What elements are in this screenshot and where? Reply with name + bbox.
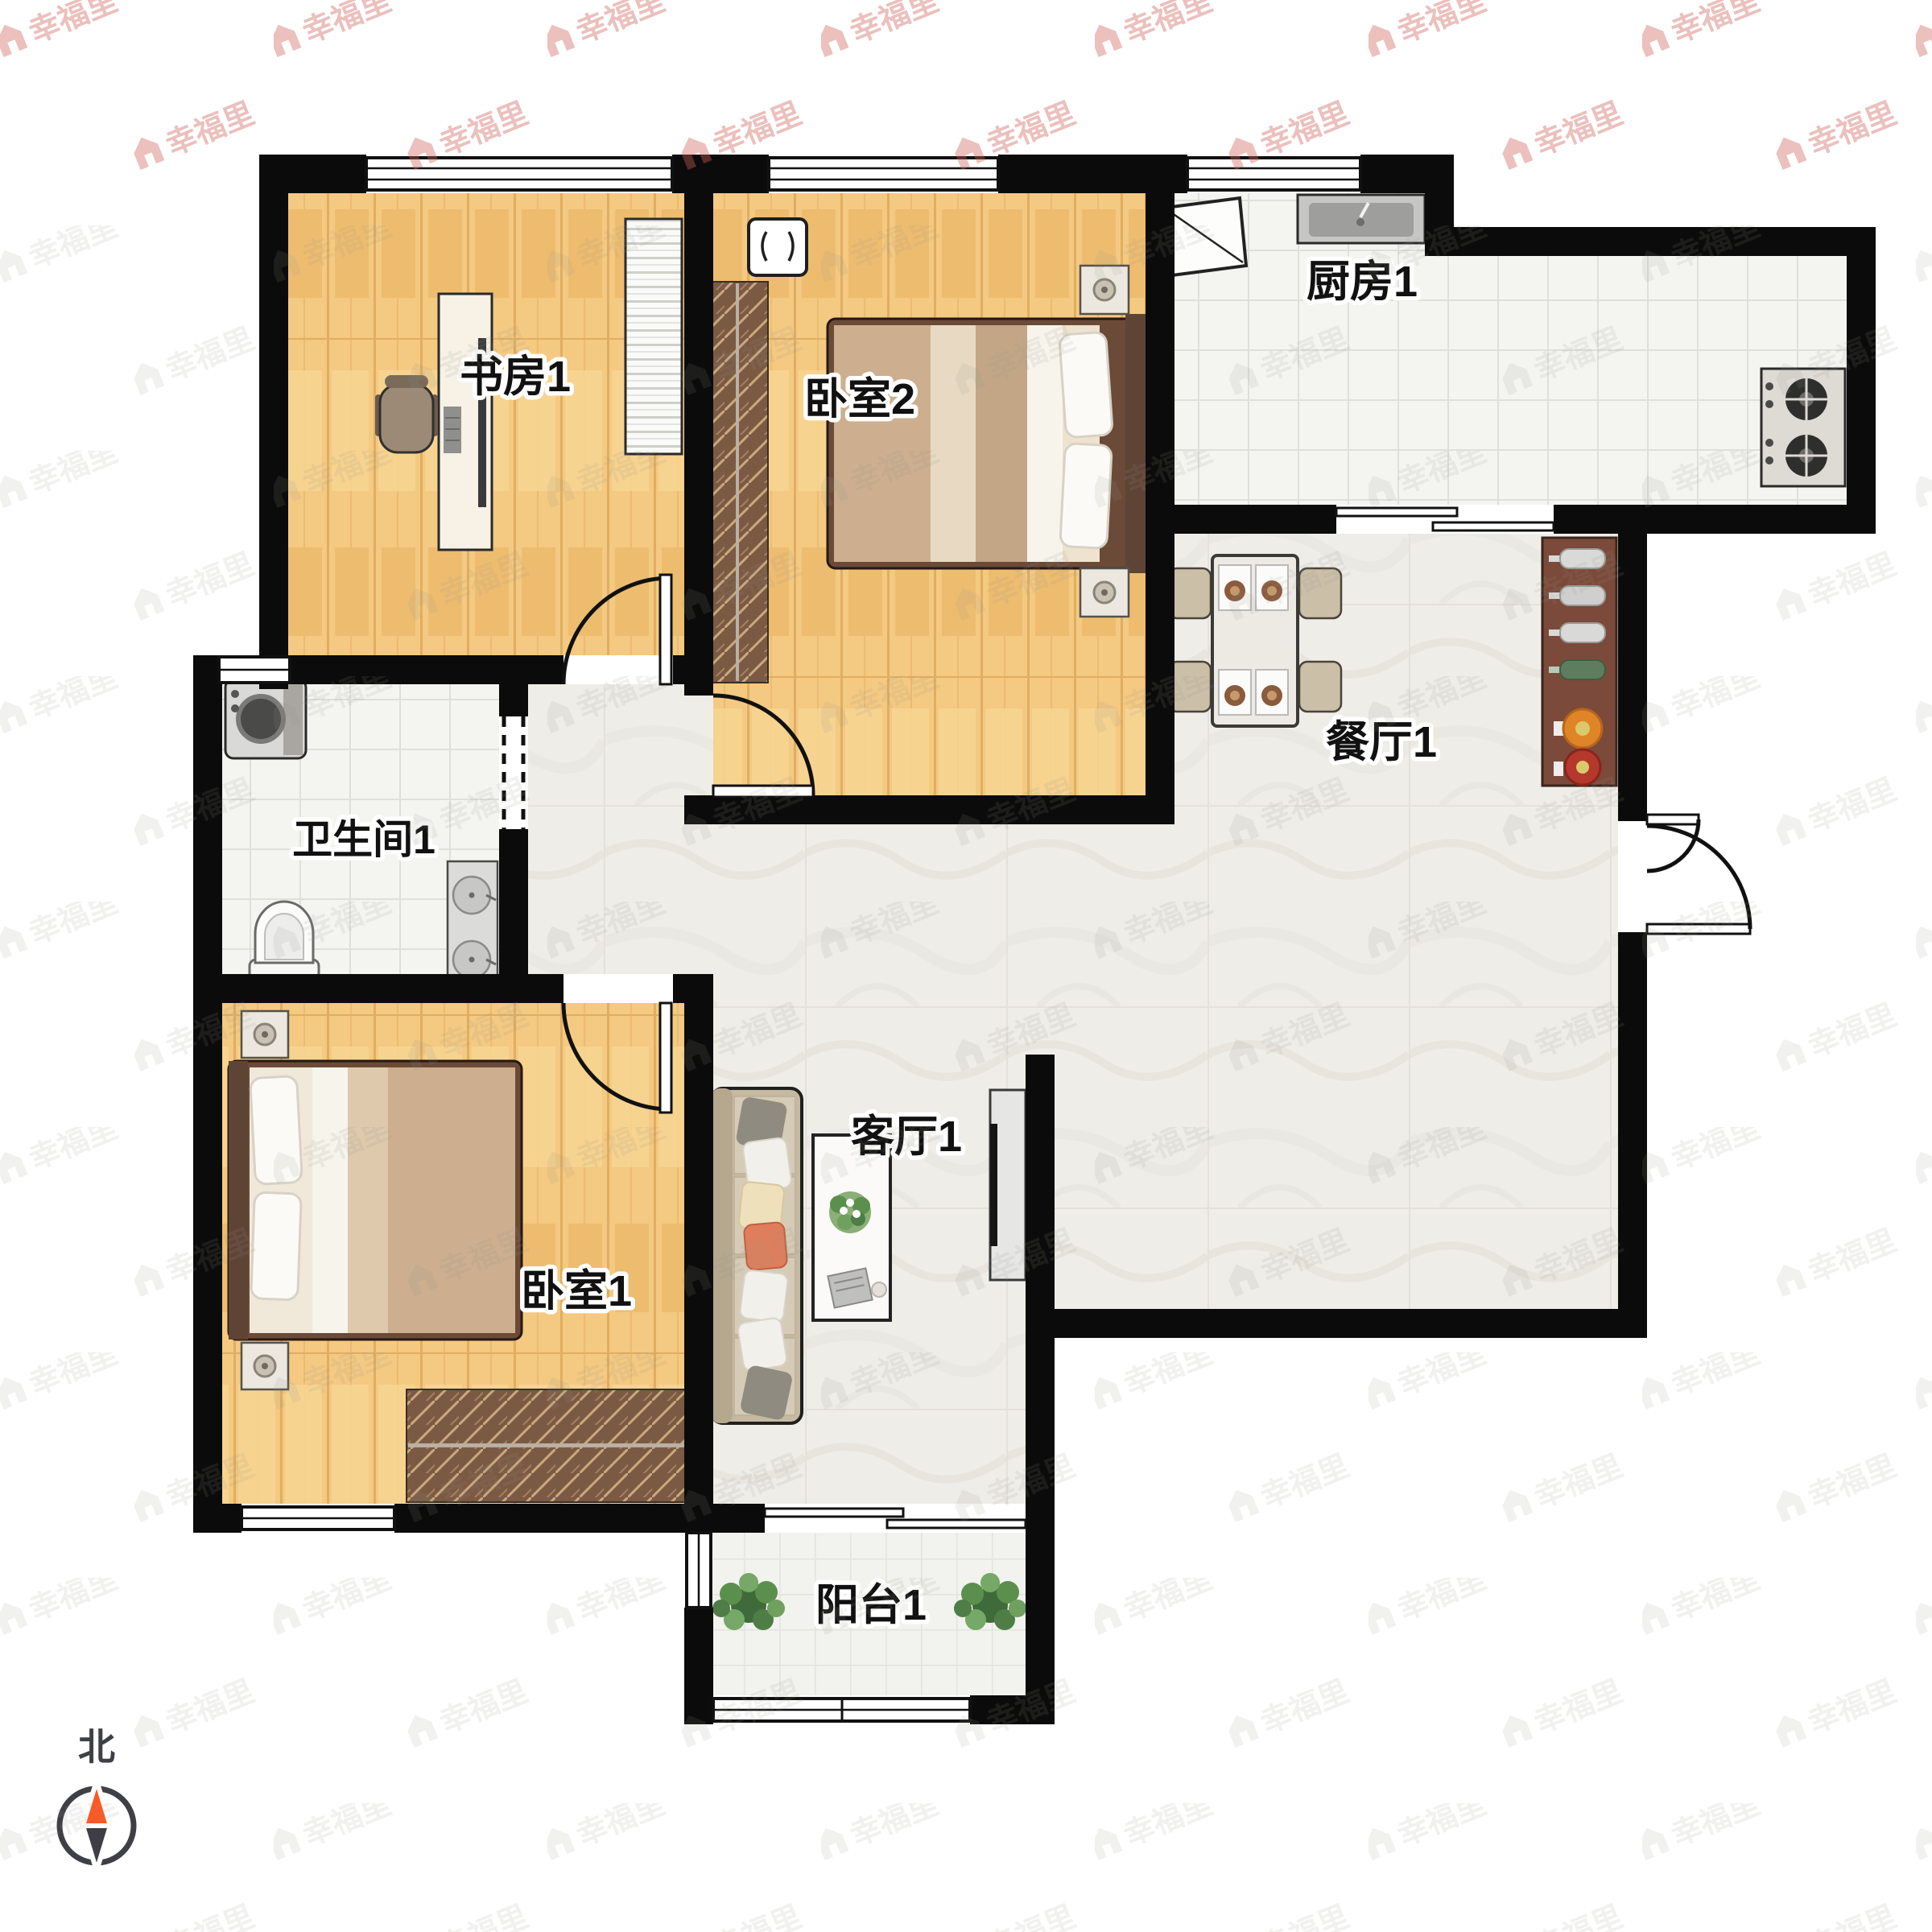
watermark-layer-red xyxy=(0,0,1932,201)
floorplan-image: 幸福里 幸福里 幸福里 幸福里 xyxy=(0,0,1932,1932)
floorplan-page: 幸福里 幸福里 幸福里 幸福里 xyxy=(0,0,1932,1932)
watermark-layer xyxy=(0,0,1932,1932)
